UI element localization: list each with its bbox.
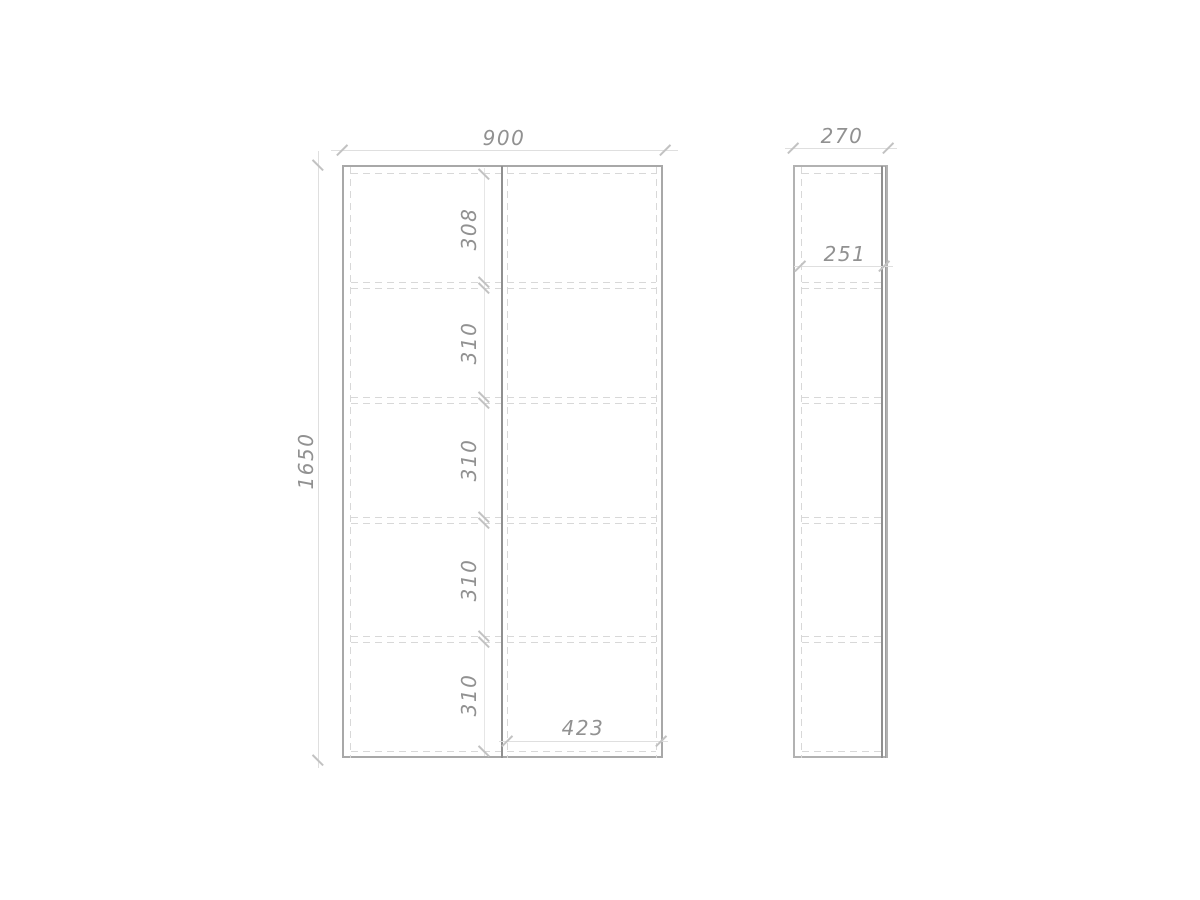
- shelf-line: [802, 403, 882, 404]
- shelf-line: [802, 282, 882, 283]
- side-bottom-panel-dashed-line: [802, 751, 882, 752]
- front-right-panel-dashed-line: [656, 167, 657, 758]
- shelf-dimension-chain-line: [484, 168, 485, 756]
- side-depth-dimension-line: [785, 148, 897, 149]
- front-left-panel-dashed-line: [350, 167, 351, 758]
- shelf-line: [351, 517, 656, 518]
- shelf-section-dim-label: 310: [457, 439, 481, 482]
- shelf-line: [802, 288, 882, 289]
- side-inner-depth-dimension-line: [794, 266, 893, 267]
- front-width-dim-label: 900: [483, 126, 526, 150]
- shelf-line: [351, 403, 656, 404]
- shelf-line: [351, 397, 656, 398]
- front-top-panel-dashed-line: [351, 173, 656, 174]
- shelf-line: [802, 642, 882, 643]
- shelf-line: [802, 636, 882, 637]
- side-inner-depth-dim-label: 251: [824, 242, 867, 266]
- center-partition-dashed-line: [507, 167, 508, 758]
- front-width-dimension-line: [331, 150, 678, 151]
- shelf-section-dim-label: 310: [457, 322, 481, 365]
- shelf-section-dim-label: 308: [457, 208, 481, 251]
- shelf-line: [351, 642, 656, 643]
- shelf-line: [351, 282, 656, 283]
- shelf-section-dim-label: 310: [457, 559, 481, 602]
- side-back-panel-dashed-line: [801, 167, 802, 758]
- door-width-dimension-line: [499, 741, 668, 742]
- shelf-line: [802, 523, 882, 524]
- side-door-panel-line: [881, 166, 883, 758]
- door-width-dim-label: 423: [562, 716, 605, 740]
- front-bottom-panel-dashed-line: [351, 751, 656, 752]
- side-door-panel-line: [885, 166, 886, 758]
- front-height-dim-label: 1650: [294, 433, 318, 490]
- technical-drawing-canvas: 308 310 310 310 310 900 1650 423: [0, 0, 1200, 900]
- shelf-line: [802, 397, 882, 398]
- shelf-line: [351, 523, 656, 524]
- shelf-section-dim-label: 310: [457, 674, 481, 717]
- shelf-line: [351, 636, 656, 637]
- shelf-line: [351, 288, 656, 289]
- front-height-dimension-line: [318, 151, 319, 768]
- side-top-panel-dashed-line: [802, 173, 882, 174]
- door-split-line: [501, 166, 503, 758]
- side-depth-dim-label: 270: [821, 124, 864, 148]
- shelf-line: [802, 517, 882, 518]
